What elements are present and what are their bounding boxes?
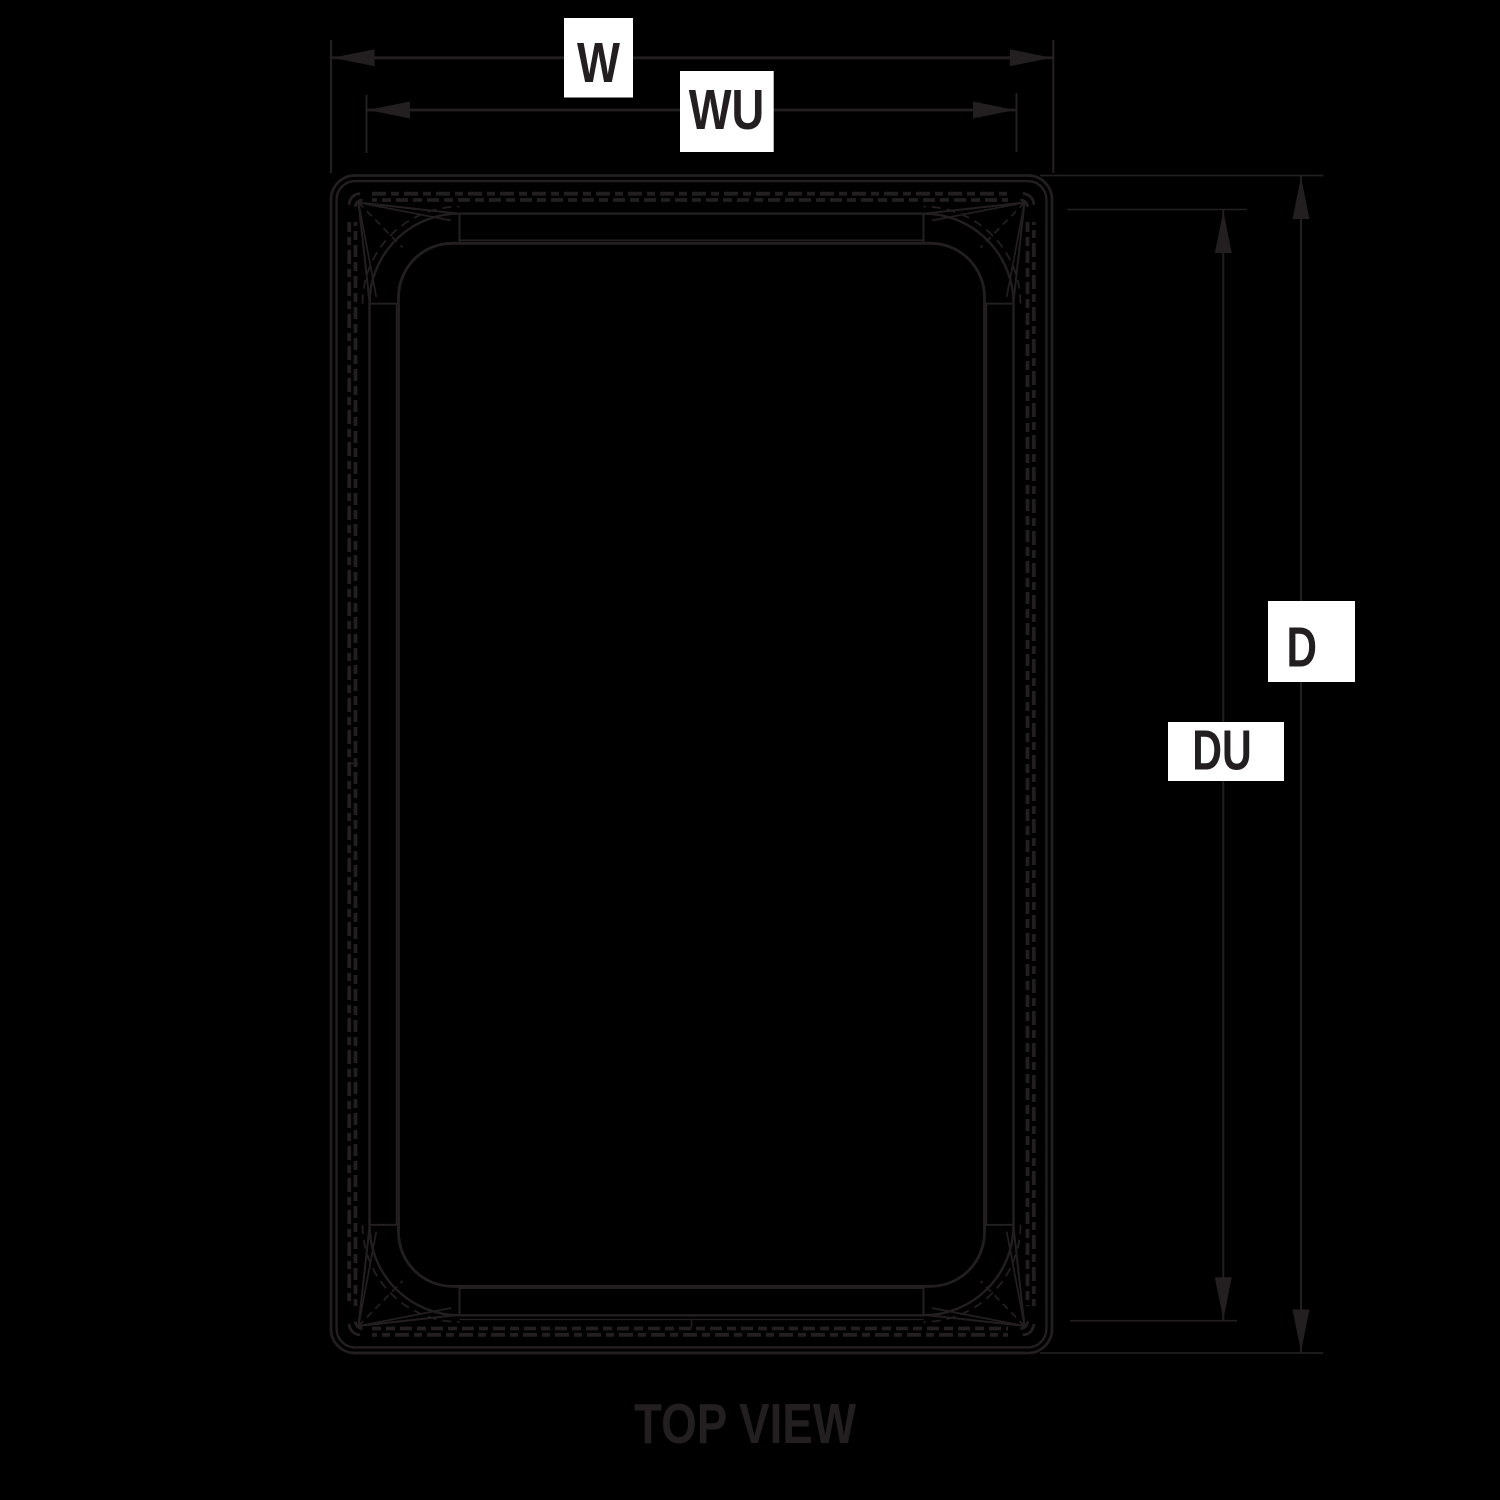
svg-text:D: D bbox=[1287, 616, 1318, 680]
svg-text:TOP VIEW: TOP VIEW bbox=[634, 1392, 857, 1455]
svg-text:DU: DU bbox=[1192, 718, 1252, 782]
svg-text:W: W bbox=[577, 31, 620, 95]
svg-text:WU: WU bbox=[689, 78, 765, 142]
